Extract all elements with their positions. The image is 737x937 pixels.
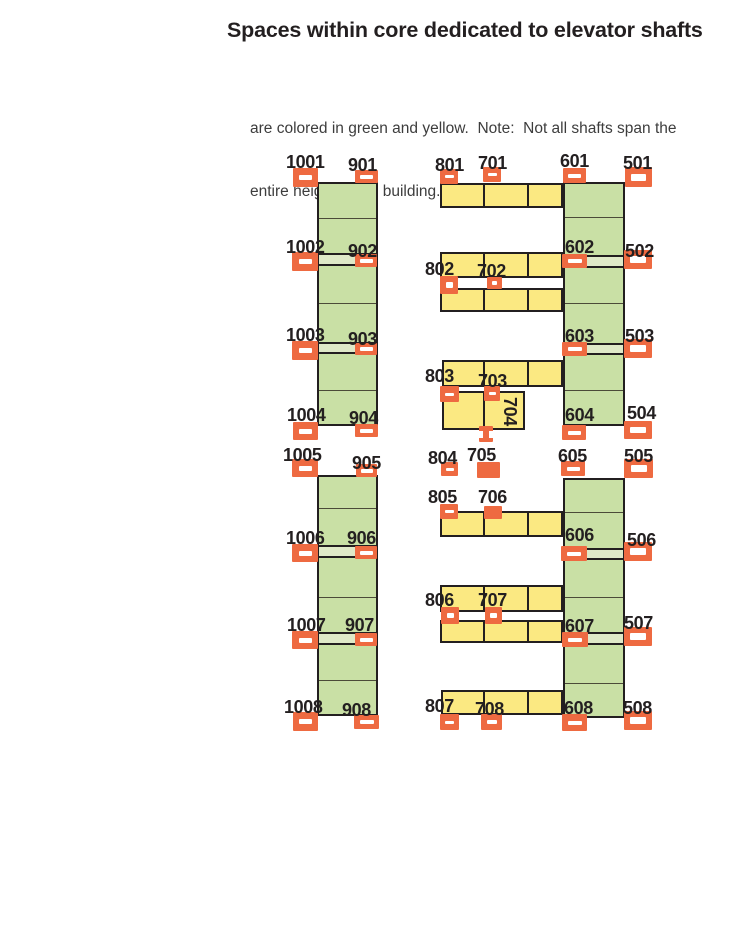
shaft-label-905: 905 <box>352 454 381 472</box>
cell-divider <box>527 513 529 535</box>
shaft-label-1007: 1007 <box>287 616 325 634</box>
cell-divider <box>565 597 623 598</box>
core-strip-left-lower <box>317 475 378 716</box>
shaft-label-1003: 1003 <box>286 326 324 344</box>
door-marker-slot <box>568 721 582 725</box>
door-marker-slot <box>492 281 497 285</box>
door-marker-slot <box>299 466 312 471</box>
door-marker-slot <box>299 429 312 434</box>
shaft-label-702: 702 <box>477 262 506 280</box>
shaft-label-902: 902 <box>348 242 377 260</box>
door-marker-slot <box>630 345 646 352</box>
shaft-bar-702-lower <box>440 288 563 312</box>
shaft-label-708: 708 <box>475 700 504 718</box>
door-marker-slot <box>487 720 497 724</box>
cell-divider <box>527 290 529 310</box>
door-marker-slot <box>446 282 453 288</box>
shaft-label-1008: 1008 <box>284 698 322 716</box>
door-marker-slot <box>567 552 581 556</box>
door-marker-slot <box>489 392 496 395</box>
cell-divider <box>565 683 623 684</box>
cell-divider <box>527 362 529 385</box>
shaft-label-801: 801 <box>435 156 464 174</box>
cell-divider <box>483 290 485 310</box>
shaft-label-508: 508 <box>623 699 652 717</box>
marker-notch-right <box>489 431 494 438</box>
door-marker-slot <box>445 721 454 724</box>
door-marker-slot <box>447 613 454 618</box>
door-marker-slot <box>360 175 373 179</box>
shaft-bar-701 <box>440 183 563 208</box>
door-marker-807 <box>440 714 459 730</box>
shaft-label-606: 606 <box>565 526 594 544</box>
shaft-label-806: 806 <box>425 591 454 609</box>
door-marker-slot <box>568 638 582 642</box>
cell-divider <box>319 508 376 509</box>
shaft-label-906: 906 <box>347 529 376 547</box>
shaft-label-506: 506 <box>627 531 656 549</box>
shaft-label-705: 705 <box>467 446 496 464</box>
cell-divider <box>565 303 623 304</box>
cell-divider <box>483 185 485 206</box>
shaft-label-601: 601 <box>560 152 589 170</box>
door-marker-slot <box>299 348 312 353</box>
shaft-label-1001: 1001 <box>286 153 324 171</box>
shaft-label-901: 901 <box>348 156 377 174</box>
shaft-label-903: 903 <box>348 330 377 348</box>
cell-divider <box>565 390 623 391</box>
core-strip-right-lower <box>563 478 625 718</box>
shaft-label-802: 802 <box>425 260 454 278</box>
shaft-label-608: 608 <box>564 699 593 717</box>
shaft-label-1005: 1005 <box>283 446 321 464</box>
cell-divider <box>483 622 485 641</box>
door-marker-slot <box>568 174 581 178</box>
subtitle-line-1: are colored in green and yellow. Note: N… <box>250 118 730 139</box>
cell-divider <box>319 597 376 598</box>
door-marker-706 <box>484 506 502 519</box>
marker-notch-left <box>478 431 483 438</box>
door-marker-slot <box>360 429 373 433</box>
page-title: Spaces within core dedicated to elevator… <box>227 18 703 44</box>
door-marker-slot <box>568 431 581 435</box>
door-marker-slot <box>567 467 580 471</box>
shaft-label-504: 504 <box>627 404 656 422</box>
shaft-label-908: 908 <box>342 701 371 719</box>
door-marker-slot <box>568 259 582 263</box>
shaft-label-604: 604 <box>565 406 594 424</box>
door-marker-803 <box>440 386 459 402</box>
door-marker-606 <box>561 546 587 561</box>
shaft-label-707: 707 <box>478 591 507 609</box>
shaft-label-904: 904 <box>349 409 378 427</box>
shaft-label-701: 701 <box>478 154 507 172</box>
shaft-label-502: 502 <box>625 242 654 260</box>
cell-divider <box>527 587 529 610</box>
door-marker-slot <box>445 510 454 513</box>
door-marker-slot <box>445 393 454 396</box>
cell-divider <box>319 218 376 219</box>
door-marker-704 <box>479 426 493 442</box>
door-marker-slot <box>488 173 497 176</box>
shaft-label-907: 907 <box>345 616 374 634</box>
cell-divider <box>565 217 623 218</box>
shaft-label-1002: 1002 <box>286 238 324 256</box>
cell-divider <box>319 680 376 681</box>
shaft-label-503: 503 <box>625 327 654 345</box>
shaft-label-602: 602 <box>565 238 594 256</box>
door-marker-slot <box>299 638 312 643</box>
door-marker-slot <box>299 175 312 180</box>
door-marker-slot <box>631 174 646 181</box>
door-marker-slot <box>360 638 373 642</box>
door-marker-slot <box>630 717 646 724</box>
cell-divider <box>565 512 623 513</box>
shaft-label-805: 805 <box>428 488 457 506</box>
shaft-label-505: 505 <box>624 447 653 465</box>
door-marker-slot <box>299 551 312 556</box>
door-marker-slot <box>360 551 373 555</box>
door-marker-slot <box>490 613 497 618</box>
door-marker-slot <box>568 347 582 351</box>
door-marker-slot <box>299 719 312 724</box>
shaft-label-706: 706 <box>478 488 507 506</box>
door-marker-slot <box>630 633 646 640</box>
door-marker-slot <box>630 427 646 433</box>
shaft-label-607: 607 <box>565 617 594 635</box>
shaft-label-507: 507 <box>624 614 653 632</box>
door-marker-504 <box>624 421 652 439</box>
core-strip-left-upper <box>317 182 378 426</box>
cell-divider <box>527 622 529 641</box>
shaft-label-603: 603 <box>565 327 594 345</box>
shaft-label-1004: 1004 <box>287 406 325 424</box>
door-marker-slot <box>445 175 454 178</box>
shaft-label-501: 501 <box>623 154 652 172</box>
door-marker-604 <box>562 425 586 440</box>
door-marker-slot <box>631 465 647 472</box>
elevator-shaft-diagram: Spaces within core dedicated to elevator… <box>0 0 737 937</box>
door-marker-slot <box>360 720 374 724</box>
shaft-label-703: 703 <box>478 372 507 390</box>
cell-divider <box>319 390 376 391</box>
cell-divider <box>527 254 529 276</box>
core-strip-right-upper <box>563 182 625 426</box>
cell-divider <box>319 303 376 304</box>
shaft-label-704: 704 <box>501 397 519 426</box>
shaft-label-804: 804 <box>428 449 457 467</box>
shaft-label-803: 803 <box>425 367 454 385</box>
shaft-label-807: 807 <box>425 697 454 715</box>
door-marker-slot <box>299 259 312 264</box>
cell-divider <box>527 692 529 713</box>
shaft-label-1006: 1006 <box>286 529 324 547</box>
cell-divider <box>527 185 529 206</box>
shaft-label-605: 605 <box>558 447 587 465</box>
